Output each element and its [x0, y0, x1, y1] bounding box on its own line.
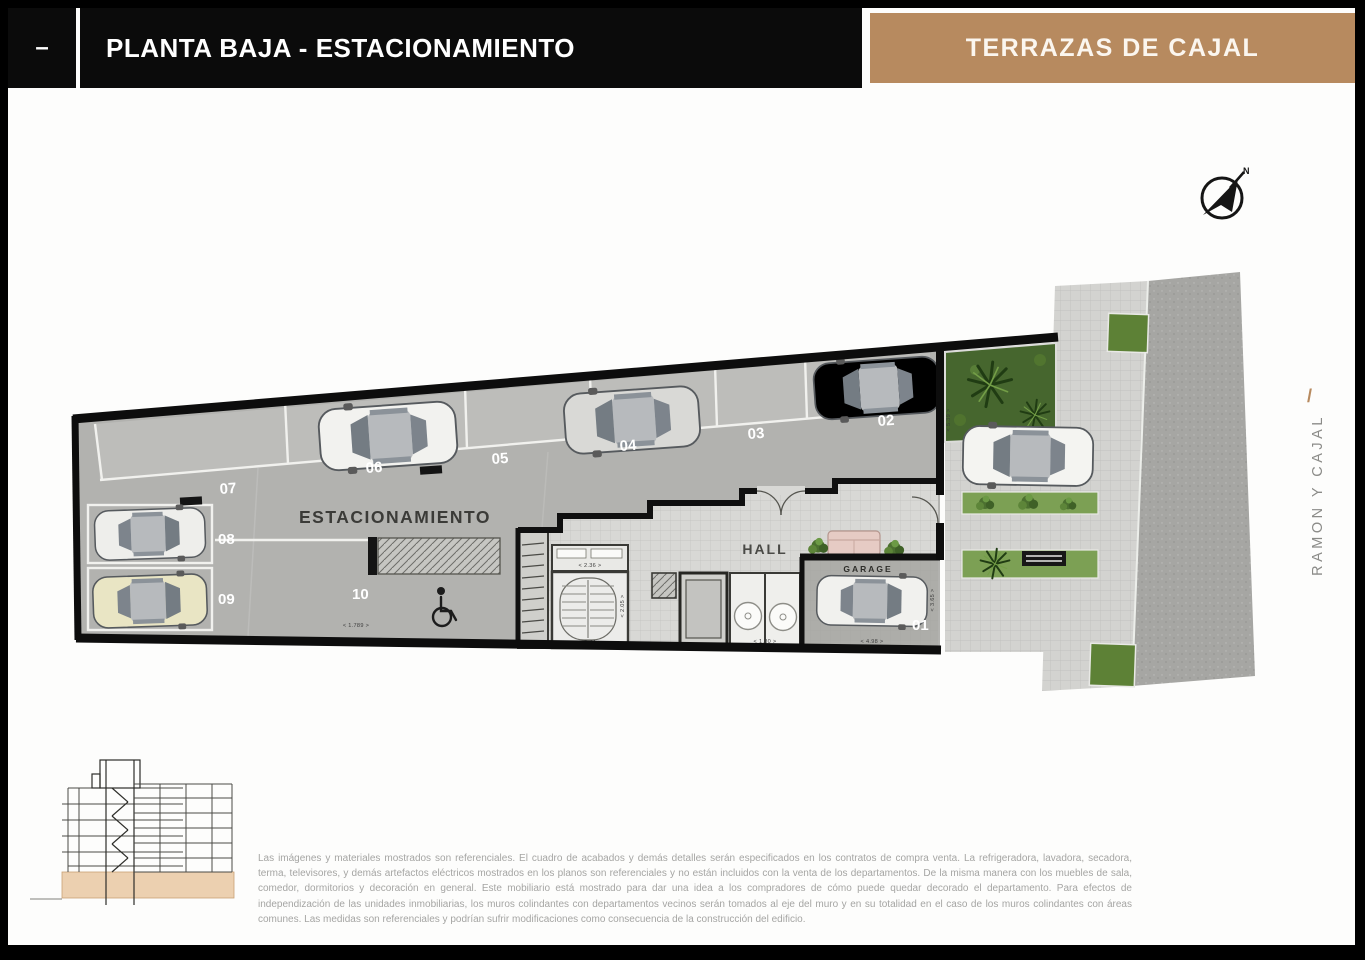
dim-label: < 2.05 > [620, 595, 626, 618]
space-number: 09 [218, 591, 235, 608]
hatched-storage-area [378, 538, 500, 574]
car-space-08 [94, 504, 206, 565]
slide-page: – PLANTA BAJA - ESTACIONAMIENTO TERRAZAS… [8, 8, 1355, 945]
street-name: RAMON Y CAJAL [1310, 414, 1326, 576]
space-number: 07 [219, 480, 237, 498]
building-section-drawing [30, 760, 234, 905]
toilet-rooms: < 1.80 > [730, 573, 800, 648]
space-number: 05 [491, 450, 509, 468]
disclaimer-text: Las imágenes y materiales mostrados son … [258, 851, 1132, 927]
wheel-stop [180, 496, 202, 505]
bench-icon [1022, 551, 1066, 566]
wheel-stop [420, 465, 443, 475]
car-space-06 [317, 396, 458, 476]
area-label: ESTACIONAMIENTO [299, 507, 491, 527]
street-accent-slash: / [1307, 386, 1312, 406]
space-number: 02 [877, 412, 895, 430]
meter-room: < 2.36 > [552, 545, 628, 571]
dim-label: < 1.789 > [343, 623, 369, 629]
dim-label: < 2.36 > [579, 563, 602, 569]
north-arrow-icon: N [1202, 166, 1250, 218]
grass-patch-top [1107, 313, 1148, 352]
street-asphalt [1132, 272, 1255, 686]
space-number: 08 [218, 531, 235, 548]
duct-shaft [652, 573, 676, 598]
space-number: 01 [912, 617, 929, 634]
car-in-garage [816, 572, 927, 631]
floor-plan-drawing: < 2.36 > < 2.44 > < 2.05 > [8, 8, 1355, 945]
space-number: 06 [365, 459, 383, 477]
north-label: N [1243, 166, 1250, 176]
elevator [680, 573, 727, 647]
car-space-09 [92, 570, 208, 633]
dim-label: < 5.39 > [946, 409, 952, 432]
bike-rack-area [518, 530, 548, 648]
stairs: < 2.44 > < 2.05 > [552, 572, 628, 648]
dim-label: < 4.98 > [861, 639, 884, 645]
car-on-driveway [962, 421, 1093, 490]
dim-label: < 3.65 > [930, 589, 936, 612]
grass-patch-bottom [1089, 643, 1135, 687]
garage-label: GARAGE [843, 564, 892, 574]
space-number: 10 [352, 586, 369, 603]
space-number: 03 [747, 425, 765, 443]
hall-label: HALL [742, 541, 787, 557]
front-court-items [962, 421, 1098, 578]
space-number: 04 [619, 437, 637, 455]
garage-01: GARAGE 01 < 4.98 > < 3.65 > [800, 557, 940, 648]
